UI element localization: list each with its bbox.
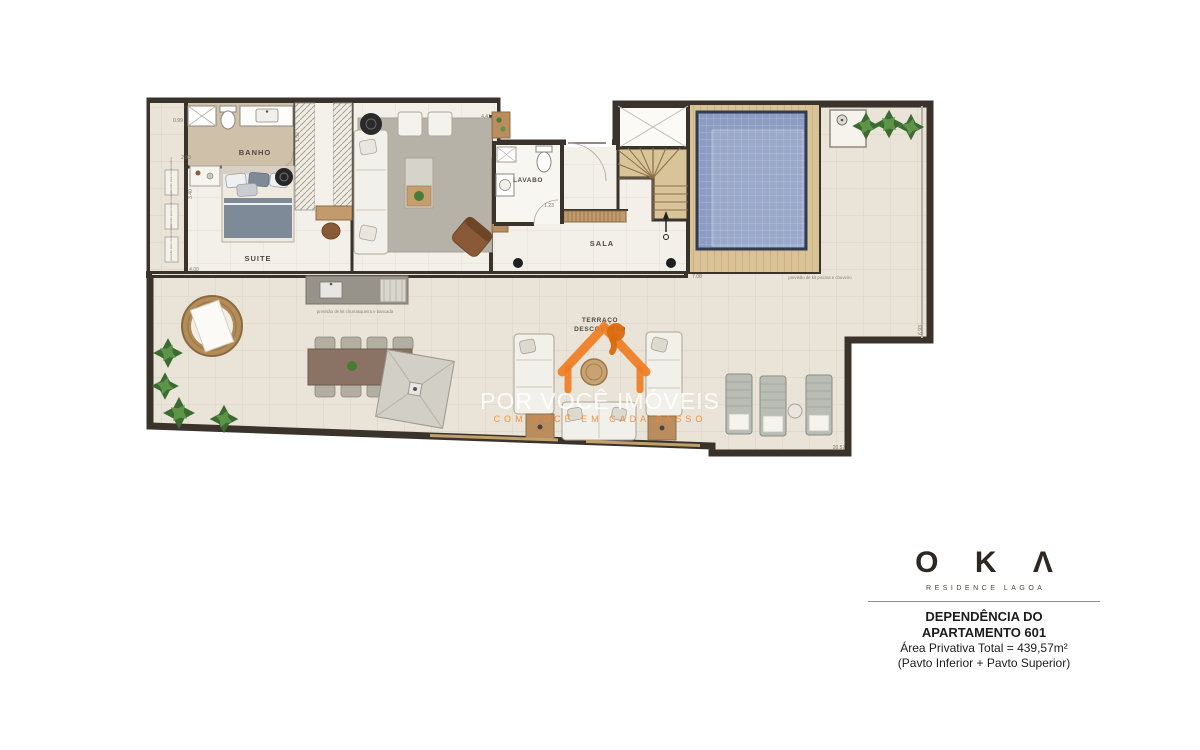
pouf	[398, 112, 422, 136]
condenser-boxes: previsão para condensadora previsão para…	[165, 157, 178, 262]
dim: 4.41	[481, 114, 491, 120]
plan-title-line1: DEPENDÊNCIA DO	[868, 609, 1100, 625]
label-suite: SUITE	[244, 254, 271, 263]
dim: 2.93	[181, 155, 191, 161]
toilet-icon	[537, 152, 551, 172]
column	[513, 258, 523, 268]
lounger-table	[788, 404, 802, 418]
area-total: Área Privativa Total = 439,57m²	[868, 641, 1100, 657]
desk-chair	[322, 223, 340, 239]
note-piscina: previsão de kit piscina e chuveiro	[788, 275, 852, 280]
desk	[316, 206, 352, 220]
label-banho: BANHO	[239, 148, 272, 157]
dim: 1.52	[295, 132, 301, 142]
speaker	[360, 113, 382, 135]
window-wall	[146, 271, 688, 278]
condenser-note: previsão para condensadora	[169, 224, 173, 261]
brand-block: O K Λ RESIDENCE LAGOA DEPENDÊNCIA DO APA…	[868, 546, 1100, 672]
shelf	[492, 112, 510, 138]
dim: 20.57	[833, 445, 846, 451]
watermark-tagline: COM VOCÊ EM CADA PASSO	[440, 414, 760, 424]
column	[666, 258, 676, 268]
nightstand	[190, 166, 220, 186]
dim: 4.00	[189, 267, 199, 273]
note-churrasqueira: previsão de kit churrasqueira e bancada	[317, 309, 394, 314]
dim: 0.99	[173, 118, 183, 124]
round-chair	[275, 168, 293, 186]
oka-logo-subtitle: RESIDENCE LAGOA	[868, 585, 1104, 592]
round-daybed	[182, 296, 242, 356]
watermark-title: POR VOCÊ IMÓVEIS	[410, 388, 790, 415]
oka-logo: O K Λ	[868, 546, 1114, 580]
closet	[295, 103, 352, 210]
label-sala: SALA	[590, 239, 614, 248]
condenser-note: previsão para condensadora	[169, 157, 173, 194]
pool-deck	[688, 104, 820, 273]
floorplan-page: previsão para condensadora previsão para…	[0, 0, 1200, 750]
slatted-console	[556, 211, 626, 222]
bbq-counter	[306, 276, 408, 304]
pavements-note: (Pavto Inferior + Pavto Superior)	[868, 656, 1100, 672]
elevator-shaft	[618, 106, 688, 148]
dim: 1.23	[544, 203, 554, 209]
dim: 7.08	[692, 274, 702, 280]
brand-divider	[868, 601, 1100, 602]
toilet-icon	[221, 111, 235, 129]
dim: 3.40	[188, 189, 194, 199]
plan-title-line2: APARTAMENTO 601	[868, 625, 1100, 641]
label-lavabo: LAVABO	[513, 177, 543, 184]
pouf	[428, 112, 452, 136]
watermark-house-icon	[552, 316, 656, 394]
condenser-note: previsão para condensadora	[169, 191, 173, 228]
dim: 6.93	[918, 325, 924, 335]
